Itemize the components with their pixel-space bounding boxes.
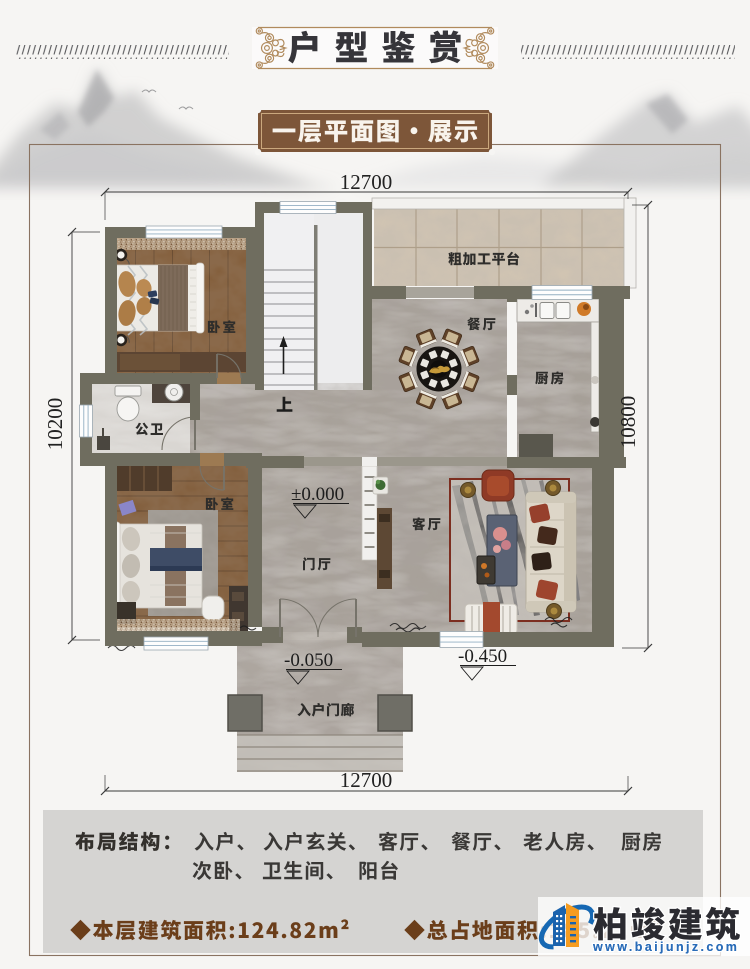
svg-text:10200: 10200 bbox=[43, 398, 67, 451]
svg-text:-0.050: -0.050 bbox=[284, 650, 333, 671]
svg-text:www.baijunjz.com: www.baijunjz.com bbox=[592, 940, 739, 954]
svg-text:12700: 12700 bbox=[340, 768, 393, 792]
svg-text:-0.450: -0.450 bbox=[458, 646, 507, 667]
svg-text:±0.000: ±0.000 bbox=[291, 484, 344, 505]
svg-text:10800: 10800 bbox=[616, 396, 640, 449]
svg-text:12700: 12700 bbox=[340, 170, 393, 194]
